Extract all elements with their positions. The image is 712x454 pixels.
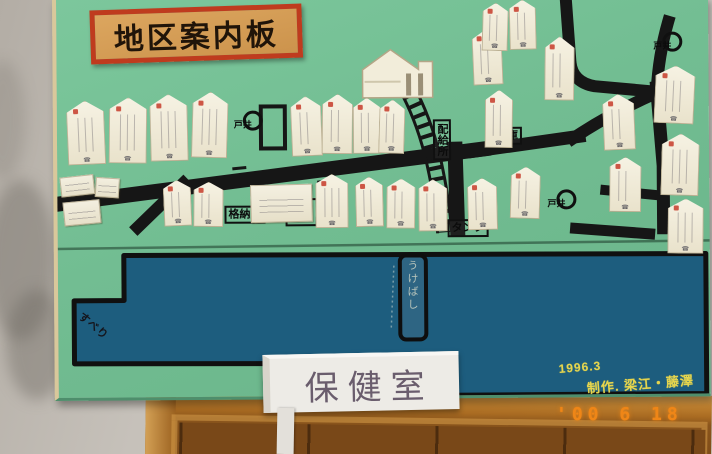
- house-nameplate: ☎: [355, 176, 384, 227]
- house-nameplate: ☎: [109, 97, 148, 163]
- house-nameplate: ☎: [66, 100, 107, 166]
- sign-post: [277, 408, 295, 454]
- structure-outline: [261, 106, 285, 148]
- bridge-name-text: うけばし: [404, 259, 421, 343]
- house-nameplate: ☎: [667, 198, 704, 253]
- house-nameplate: ☎: [378, 99, 405, 154]
- health-room-sign-text: 保健室: [304, 358, 434, 410]
- house-nameplate: ☎: [609, 157, 642, 212]
- tank-branch-road: [455, 149, 458, 229]
- phone-mark: ☎: [151, 154, 189, 161]
- phone-mark: ☎: [292, 149, 323, 156]
- phone-mark: ☎: [482, 44, 508, 51]
- house-nameplate: ☎: [193, 182, 223, 227]
- house-nameplate: ☎: [602, 93, 636, 150]
- phone-mark: ☎: [356, 219, 384, 226]
- phone-mark: ☎: [468, 223, 498, 230]
- house-nameplate: ☎: [510, 166, 541, 219]
- phone-mark: ☎: [604, 142, 636, 149]
- map-board: 配給所倉庫格納庫消防小屋タンク井戸井戸井戸 ☎☎☎☎☎☎☎☎☎☎☎☎☎☎☎☎☎☎…: [52, 0, 711, 401]
- phone-mark: ☎: [653, 116, 693, 124]
- phone-mark: ☎: [353, 147, 381, 153]
- house-nameplate: ☎: [191, 91, 229, 158]
- health-room-sign: 保健室: [262, 351, 459, 413]
- house-nameplate: ☎: [544, 36, 575, 100]
- rect-nameplate: [59, 174, 95, 198]
- house-nameplate: ☎: [482, 3, 509, 52]
- house-nameplate: ☎: [322, 94, 354, 154]
- phone-mark: ☎: [419, 224, 448, 230]
- camera-date-stamp: '00 6 18: [556, 404, 683, 425]
- phone-mark: ☎: [322, 147, 353, 153]
- phone-mark: ☎: [473, 77, 503, 84]
- board-seam: [58, 240, 710, 249]
- phone-mark: ☎: [667, 246, 703, 252]
- phone-mark: ☎: [510, 42, 537, 49]
- well-label: 井戸: [233, 120, 251, 129]
- top-right-road: [566, 2, 657, 93]
- phone-mark: ☎: [193, 220, 223, 226]
- house-nameplate: ☎: [485, 90, 514, 148]
- well-label: 井戸: [546, 198, 564, 207]
- community-building: [362, 49, 432, 97]
- phone-mark: ☎: [378, 146, 404, 153]
- phone-mark: ☎: [544, 93, 574, 99]
- phone-mark: ☎: [316, 221, 349, 227]
- phone-mark: ☎: [386, 221, 415, 227]
- rect-nameplate: [62, 199, 101, 226]
- phone-mark: ☎: [68, 157, 106, 165]
- house-nameplate: ☎: [653, 65, 696, 125]
- phone-mark: ☎: [109, 156, 147, 162]
- title-sign-text: 地区案内板: [113, 9, 279, 58]
- house-nameplate: ☎: [290, 96, 323, 157]
- phone-mark: ☎: [510, 211, 540, 218]
- rect-nameplate: [250, 184, 313, 224]
- house-nameplate: ☎: [467, 178, 498, 231]
- house-nameplate: ☎: [162, 180, 192, 227]
- phone-mark: ☎: [485, 141, 513, 147]
- house-nameplate: ☎: [386, 178, 416, 228]
- phone-mark: ☎: [164, 219, 192, 226]
- phone-mark: ☎: [609, 205, 641, 211]
- wall-stain: [0, 60, 26, 180]
- phone-mark: ☎: [660, 188, 698, 195]
- house-nameplate: ☎: [315, 174, 348, 228]
- house-nameplate: ☎: [660, 133, 700, 196]
- house-nameplate: ☎: [353, 98, 381, 154]
- phone-mark: ☎: [191, 150, 227, 157]
- house-nameplate: ☎: [149, 94, 189, 162]
- facility-label: 配給所: [433, 119, 451, 160]
- house-nameplate: ☎: [418, 179, 447, 231]
- well-label: 井戸: [652, 41, 670, 50]
- title-sign: 地区案内板: [89, 3, 303, 64]
- photo-of-district-map-board: 配給所倉庫格納庫消防小屋タンク井戸井戸井戸 ☎☎☎☎☎☎☎☎☎☎☎☎☎☎☎☎☎☎…: [0, 0, 712, 454]
- house-nameplate: ☎: [509, 0, 537, 50]
- rect-nameplate: [95, 177, 120, 198]
